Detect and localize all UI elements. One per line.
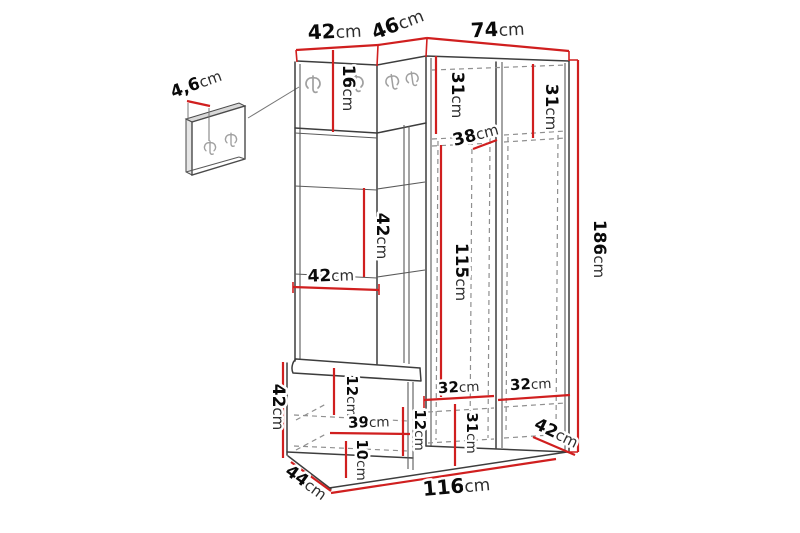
detail-hook-panel	[186, 87, 299, 175]
top-back-edge	[432, 65, 566, 70]
coat-hook-icon	[405, 71, 419, 86]
back-panel-seam-1	[295, 182, 425, 190]
dim-line-left-shelf-width	[424, 396, 494, 400]
dim-label-corner-filler-width: 12cm	[411, 409, 429, 450]
dim-label-bench-bottom-height: 10cm	[353, 439, 371, 480]
dim-label-right-shelf-width: 32cm	[510, 374, 552, 394]
dim-line-bench-inner-width	[330, 433, 410, 434]
bottom-shelf-left	[428, 408, 494, 443]
dim-label-bench-height: 42cm	[268, 384, 288, 431]
dim-line-left-section-width	[293, 287, 379, 290]
bench-bottom-edge	[287, 452, 413, 458]
dim-label-left-door-top-space: 31cm	[447, 72, 467, 119]
dim-label-bench-inner-width: 39cm	[348, 412, 390, 431]
bench-seat-back-edge	[296, 359, 420, 368]
coat-hook-icon	[385, 74, 400, 90]
dim-label-shelf-depth: 38cm	[451, 119, 501, 150]
dim-label-left-section-gap: 42cm	[372, 213, 392, 260]
hook-strip-bottom	[295, 123, 426, 133]
dim-label-bench-top-thickness: 12cm	[343, 375, 361, 416]
dim-line-right-shelf-width	[498, 395, 570, 400]
dimension-labels: 4,6cm 42cm 46cm 74cm 16cm 31cm 31cm 38cm…	[168, 3, 609, 505]
coat-hook-icon	[306, 76, 320, 92]
dim-label-top-right-width: 74cm	[470, 16, 525, 43]
hook-strip-bottom-inner	[295, 133, 377, 138]
furniture-dimension-diagram: 4,6cm 42cm 46cm 74cm 16cm 31cm 31cm 38cm…	[0, 0, 800, 533]
top-shelf-right	[504, 131, 566, 142]
dim-label-top-left-width: 42cm	[307, 18, 362, 45]
dim-label-panel-thickness: 4,6cm	[168, 66, 225, 103]
screenshot-canvas: 4,6cm 42cm 46cm 74cm 16cm 31cm 31cm 38cm…	[0, 0, 800, 533]
dim-label-interior-height: 115cm	[451, 243, 471, 301]
dim-label-left-section-width: 42cm	[307, 265, 354, 287]
dim-label-total-width: 116cm	[422, 471, 492, 501]
dim-label-bottom-space-height: 31cm	[463, 412, 481, 453]
leader-line	[248, 87, 299, 118]
dim-line-top-left-width	[296, 45, 378, 50]
detail-panel-side-edge	[186, 119, 192, 175]
dim-label-top-corner-width: 46cm	[368, 3, 427, 45]
dim-label-right-door-top-space: 31cm	[541, 84, 561, 131]
door-bottom-edge	[426, 446, 569, 452]
top-front-edge	[297, 56, 569, 65]
dim-label-left-shelf-width: 32cm	[438, 377, 480, 397]
dim-label-total-height: 186cm	[589, 220, 609, 278]
dim-line-panel-thickness	[187, 101, 210, 106]
dim-label-hook-strip-height: 16cm	[338, 65, 358, 112]
bench-interior-depth-edges	[296, 404, 326, 450]
